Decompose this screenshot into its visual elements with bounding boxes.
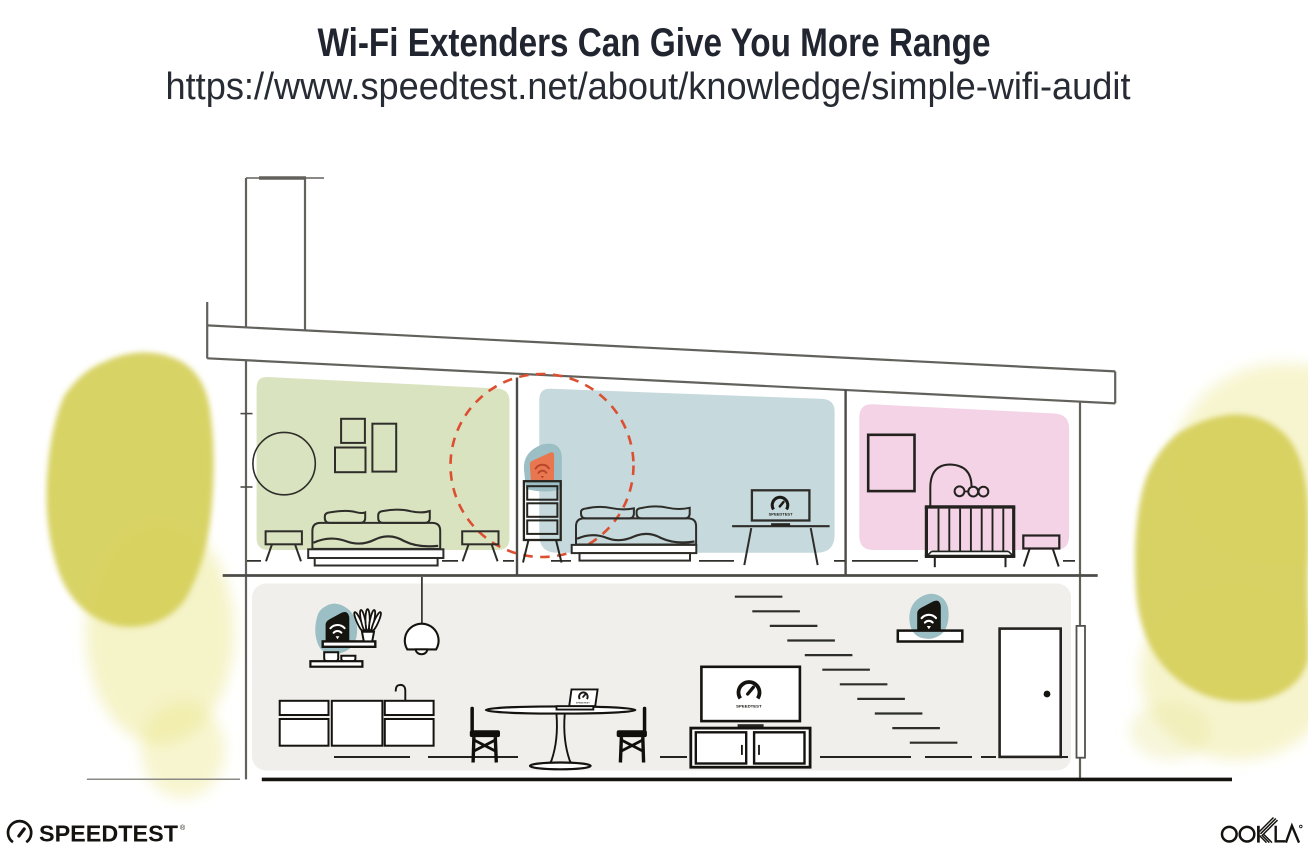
svg-text:SPEEDTEST: SPEEDTEST <box>736 704 762 709</box>
svg-text:SPEEDTEST: SPEEDTEST <box>576 703 590 705</box>
svg-text:SPEEDTEST: SPEEDTEST <box>769 513 793 517</box>
svg-text:SPEEDTEST: SPEEDTEST <box>39 821 179 847</box>
svg-text:®: ® <box>180 824 186 832</box>
svg-text:https://www.speedtest.net/abou: https://www.speedtest.net/about/knowledg… <box>166 66 1131 108</box>
svg-text:Wi-Fi Extenders Can Give You M: Wi-Fi Extenders Can Give You More Range <box>318 21 991 65</box>
